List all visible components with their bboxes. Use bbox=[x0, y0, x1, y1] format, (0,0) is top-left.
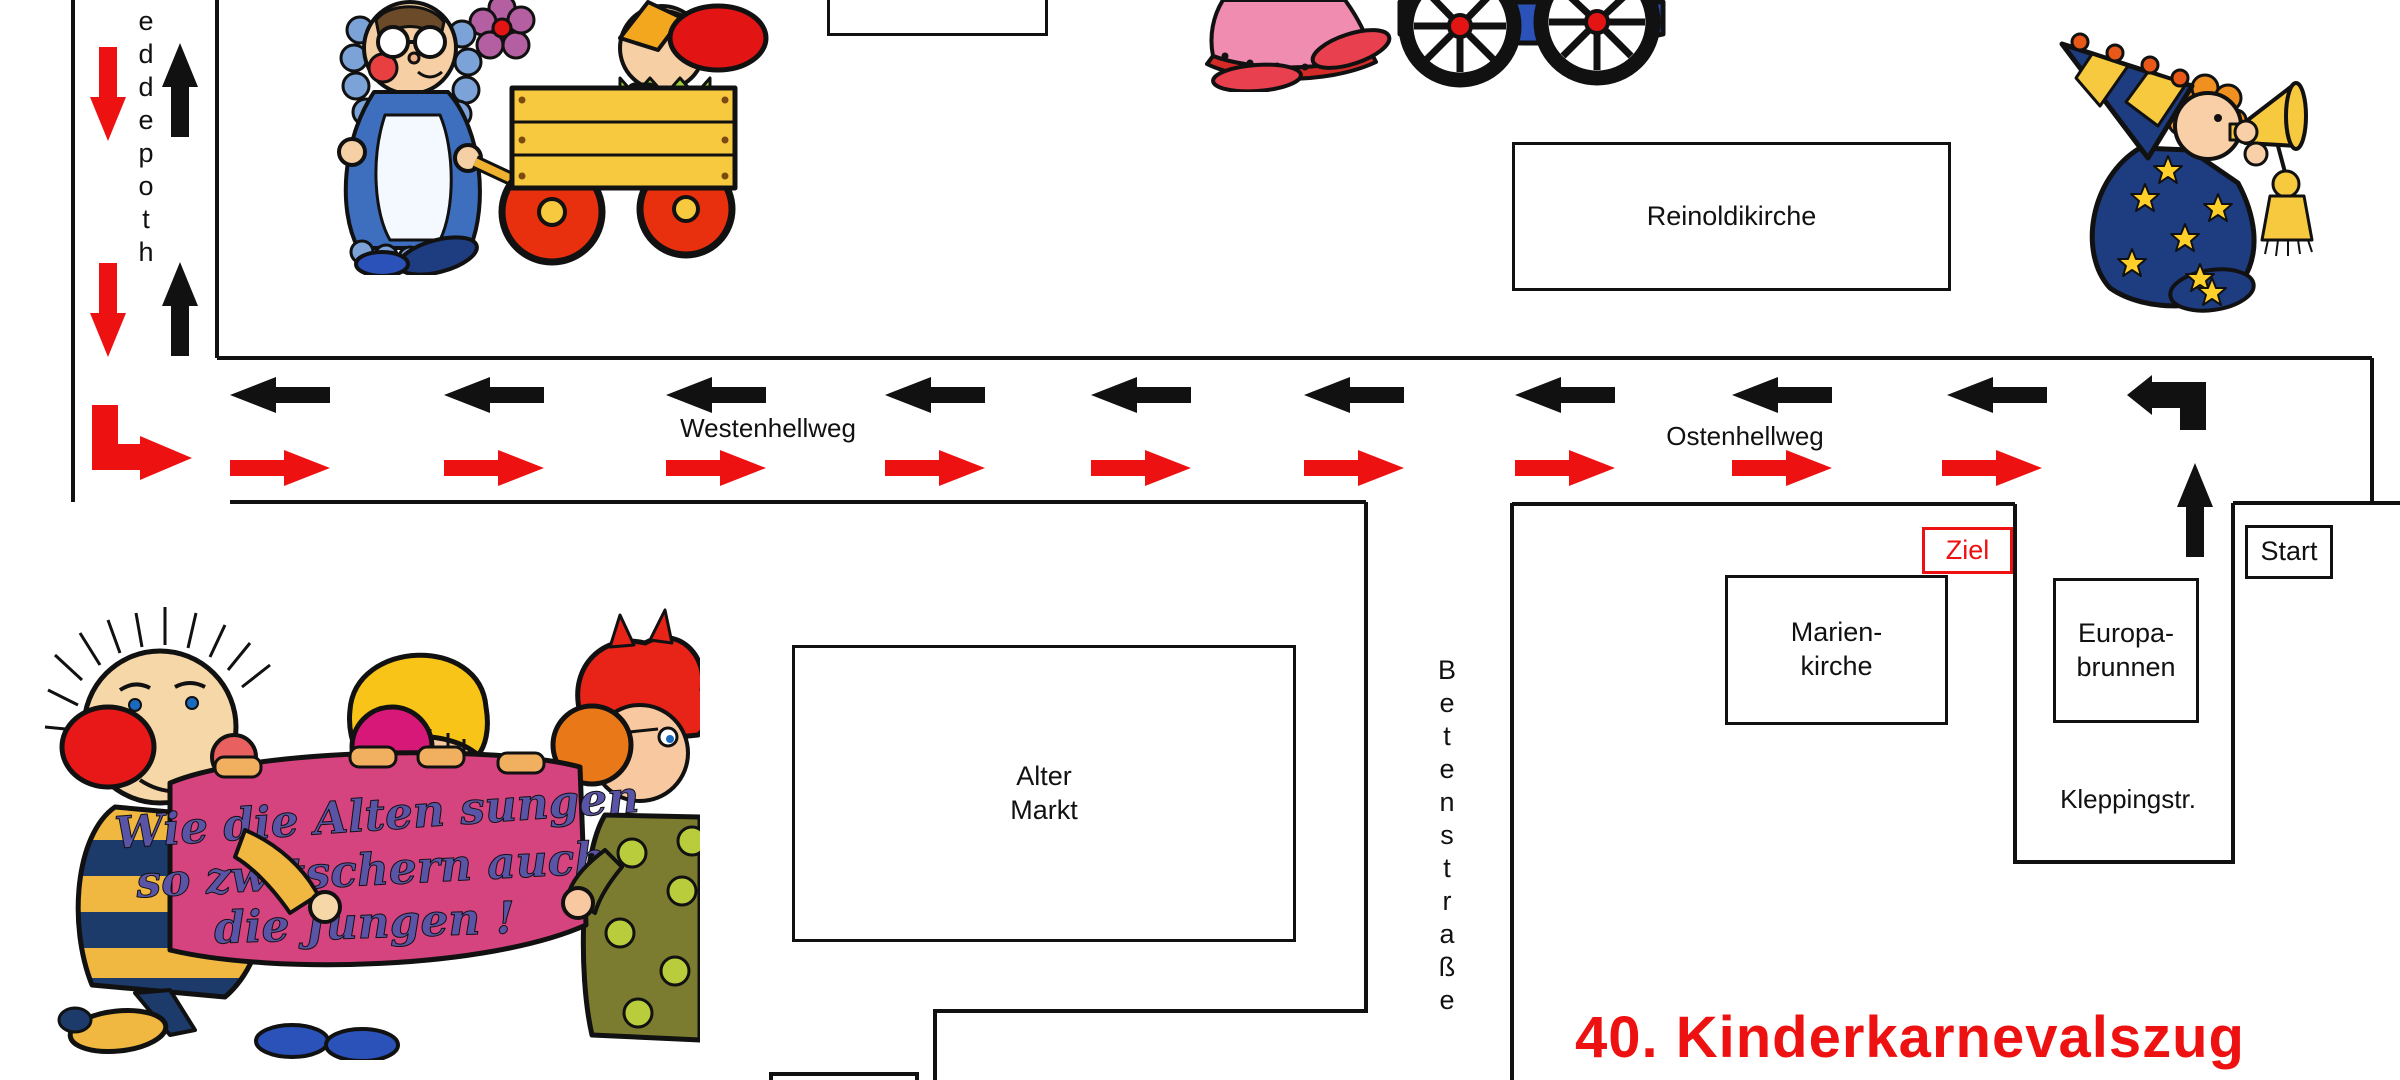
small-building-sliver bbox=[771, 1074, 917, 1080]
parade-banner: Wie die Alten sungen so zwitschern auch … bbox=[113, 753, 641, 965]
pink-dress-figure bbox=[1207, 0, 1394, 92]
alter-markt-box: Alter Markt bbox=[792, 645, 1296, 942]
alter-markt-label-line1: Alter bbox=[1016, 760, 1072, 794]
start-marker: Start bbox=[2245, 525, 2333, 579]
banner-line-3: die Jungen ! bbox=[213, 893, 516, 954]
map-title: 40. Kinderkarnevalszug bbox=[1575, 1004, 2245, 1071]
outbound-down-arrow-left-street-2 bbox=[90, 263, 126, 357]
unlabeled-building-box-top bbox=[827, 0, 1048, 36]
marienkirche-label-line1: Marien- bbox=[1791, 616, 1883, 650]
kinderkarnevalszug-route-map: Wie die Alten sungen so zwitschern auch … bbox=[0, 0, 2400, 1080]
flower-icon bbox=[470, 0, 534, 58]
europabrunnen-box: Europa- brunnen bbox=[2053, 578, 2199, 723]
europabrunnen-label-line2: brunnen bbox=[2076, 651, 2175, 685]
blue-wagon bbox=[1400, 0, 1663, 80]
pointed-hat bbox=[2062, 34, 2192, 158]
reinoldikirche-box: Reinoldikirche bbox=[1512, 142, 1951, 291]
outbound-corner-arrow bbox=[92, 405, 192, 480]
return-corner-arrow bbox=[2127, 375, 2206, 430]
outbound-down-arrow-left-street-1 bbox=[90, 47, 126, 141]
wagon-wheel bbox=[1406, 0, 1514, 80]
alter-markt-label-line2: Markt bbox=[1010, 794, 1078, 828]
street-label-kleppingstr: Kleppingstr. bbox=[2028, 784, 2228, 815]
ziel-label: Ziel bbox=[1946, 534, 1990, 568]
return-up-arrow-left-street-1 bbox=[162, 43, 198, 137]
europabrunnen-label-line1: Europa- bbox=[2078, 617, 2174, 651]
clown-with-cart-illustration bbox=[290, 0, 795, 275]
street-label-ostenhellweg: Ostenhellweg bbox=[1615, 421, 1875, 452]
wagon-wheel bbox=[1541, 0, 1653, 78]
return-up-arrow-kleppingstr bbox=[2177, 463, 2213, 557]
start-label: Start bbox=[2260, 535, 2317, 569]
princess-and-wagon-illustration bbox=[1195, 0, 1670, 92]
reinoldikirche-label: Reinoldikirche bbox=[1647, 200, 1817, 234]
street-label-eddepoth: eddepoth bbox=[123, 6, 161, 270]
street-label-betenstrasse: Betenstraße bbox=[1424, 655, 1462, 1018]
trumpet-tassel bbox=[2262, 146, 2312, 256]
marienkirche-label-line2: kirche bbox=[1800, 650, 1872, 684]
granny-clown bbox=[339, 2, 481, 275]
ziel-marker: Ziel bbox=[1922, 527, 2013, 574]
marienkirche-box: Marien- kirche bbox=[1725, 575, 1948, 725]
street-label-westenhellweg: Westenhellweg bbox=[638, 413, 898, 444]
trumpeter-clown-illustration bbox=[2040, 28, 2320, 318]
wooden-cart bbox=[502, 88, 735, 262]
clowns-with-banner-illustration: Wie die Alten sungen so zwitschern auch … bbox=[20, 595, 700, 1060]
return-up-arrow-left-street-2 bbox=[162, 262, 198, 356]
